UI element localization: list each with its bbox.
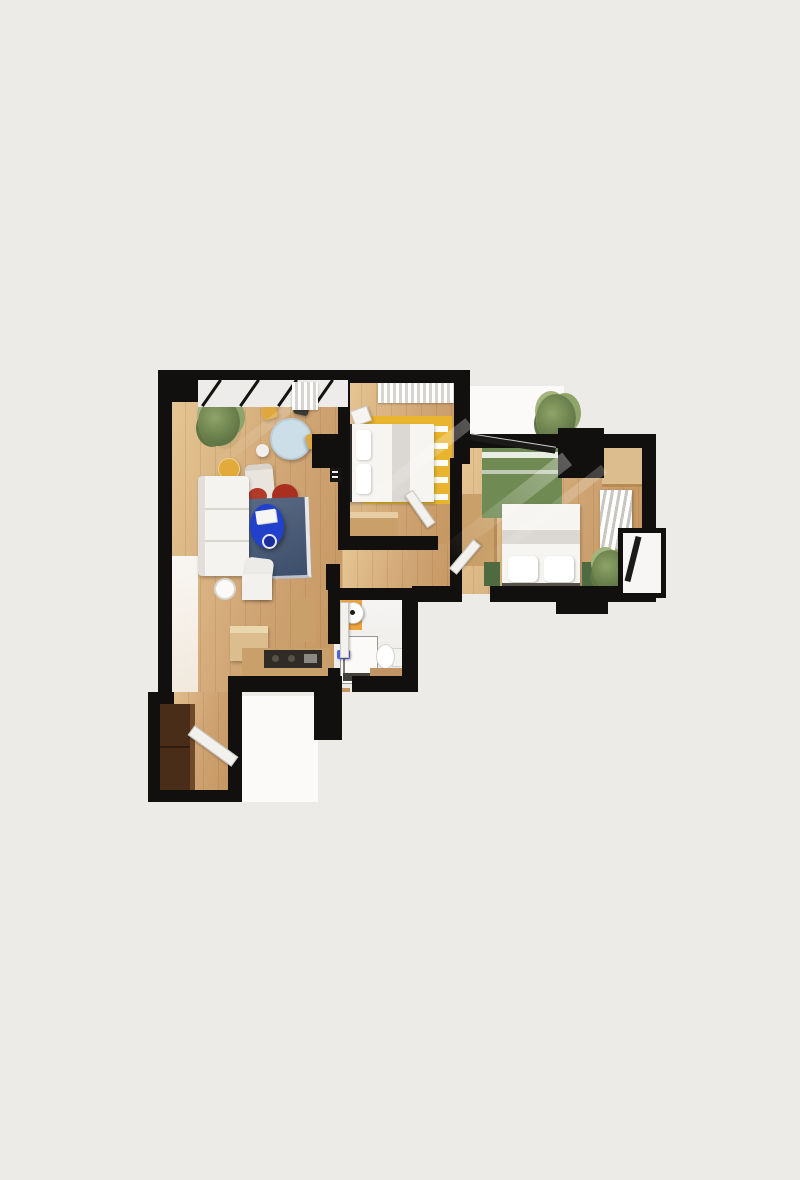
living-window-curtain — [292, 382, 318, 410]
bed1-pillow-1 — [356, 430, 371, 460]
bed1-pillow-2 — [356, 464, 371, 494]
sink-drain — [350, 610, 355, 615]
magazines — [255, 509, 277, 525]
landing-bottom-slab — [240, 696, 318, 802]
rug-green-stripe-2 — [482, 470, 562, 474]
fridge — [242, 574, 272, 600]
wall-left — [158, 370, 172, 700]
wall-bedroom1-right — [454, 370, 470, 464]
wall-bathroom-left-upper — [328, 588, 340, 644]
bed2-blanket-band — [502, 530, 580, 544]
bed2-pillow-left — [508, 556, 538, 582]
wall-bedroom2-right — [642, 434, 656, 540]
wall-bedroom1-bottom — [338, 536, 438, 550]
wall-entry-left — [148, 692, 160, 802]
wall-passage-corner — [326, 564, 340, 590]
sofa-cushion-divider-2 — [205, 540, 249, 542]
floor-plan-render — [0, 0, 800, 1180]
cooktop-burner-2 — [288, 655, 295, 662]
cooktop-burner-1 — [272, 655, 279, 662]
kitchen-sink-inset — [304, 654, 317, 663]
dining-chair-white — [256, 444, 269, 457]
sofa-cushion-divider-1 — [205, 508, 249, 510]
wall-bedroom2-bottom-block — [556, 586, 608, 614]
bedroom2-bed — [502, 504, 580, 588]
bed2-pillow-right — [544, 556, 574, 582]
floor-lamp — [214, 578, 236, 600]
closet-divider — [158, 746, 190, 748]
wall-top-bedroom1 — [344, 370, 470, 383]
entry-closet — [158, 704, 195, 790]
kitchen-cooktop — [264, 650, 322, 668]
page-background: { "meta": { "description": "3D top-down … — [0, 0, 800, 1180]
bedroom2-wardrobe-top — [602, 448, 646, 487]
bed1-blanket-band — [392, 424, 410, 502]
window-mullion-2 — [239, 379, 260, 407]
living-window-glass — [198, 380, 348, 407]
bedroom1-bed — [348, 424, 434, 502]
bedroom2-nightstand-left — [484, 562, 500, 586]
wall-bathroom-right — [402, 588, 418, 692]
thermostat-marks — [332, 471, 338, 473]
wall-media-block — [312, 434, 342, 468]
window-mullion-1 — [201, 379, 222, 407]
toilet-bowl — [376, 644, 395, 669]
wall-bathroom-left-lower — [328, 668, 340, 692]
bedroom1-window-curtain — [378, 383, 454, 403]
wall-thermostat-box — [330, 468, 341, 482]
bedroom2-right-window-frame — [618, 528, 666, 598]
kitchen-tall-cabinet — [292, 598, 316, 642]
white-sofa — [198, 476, 249, 576]
round-tray — [262, 534, 277, 549]
bathroom-door-leaf — [340, 602, 349, 658]
living-wall-face — [172, 556, 198, 692]
wall-entry-right — [228, 690, 242, 802]
